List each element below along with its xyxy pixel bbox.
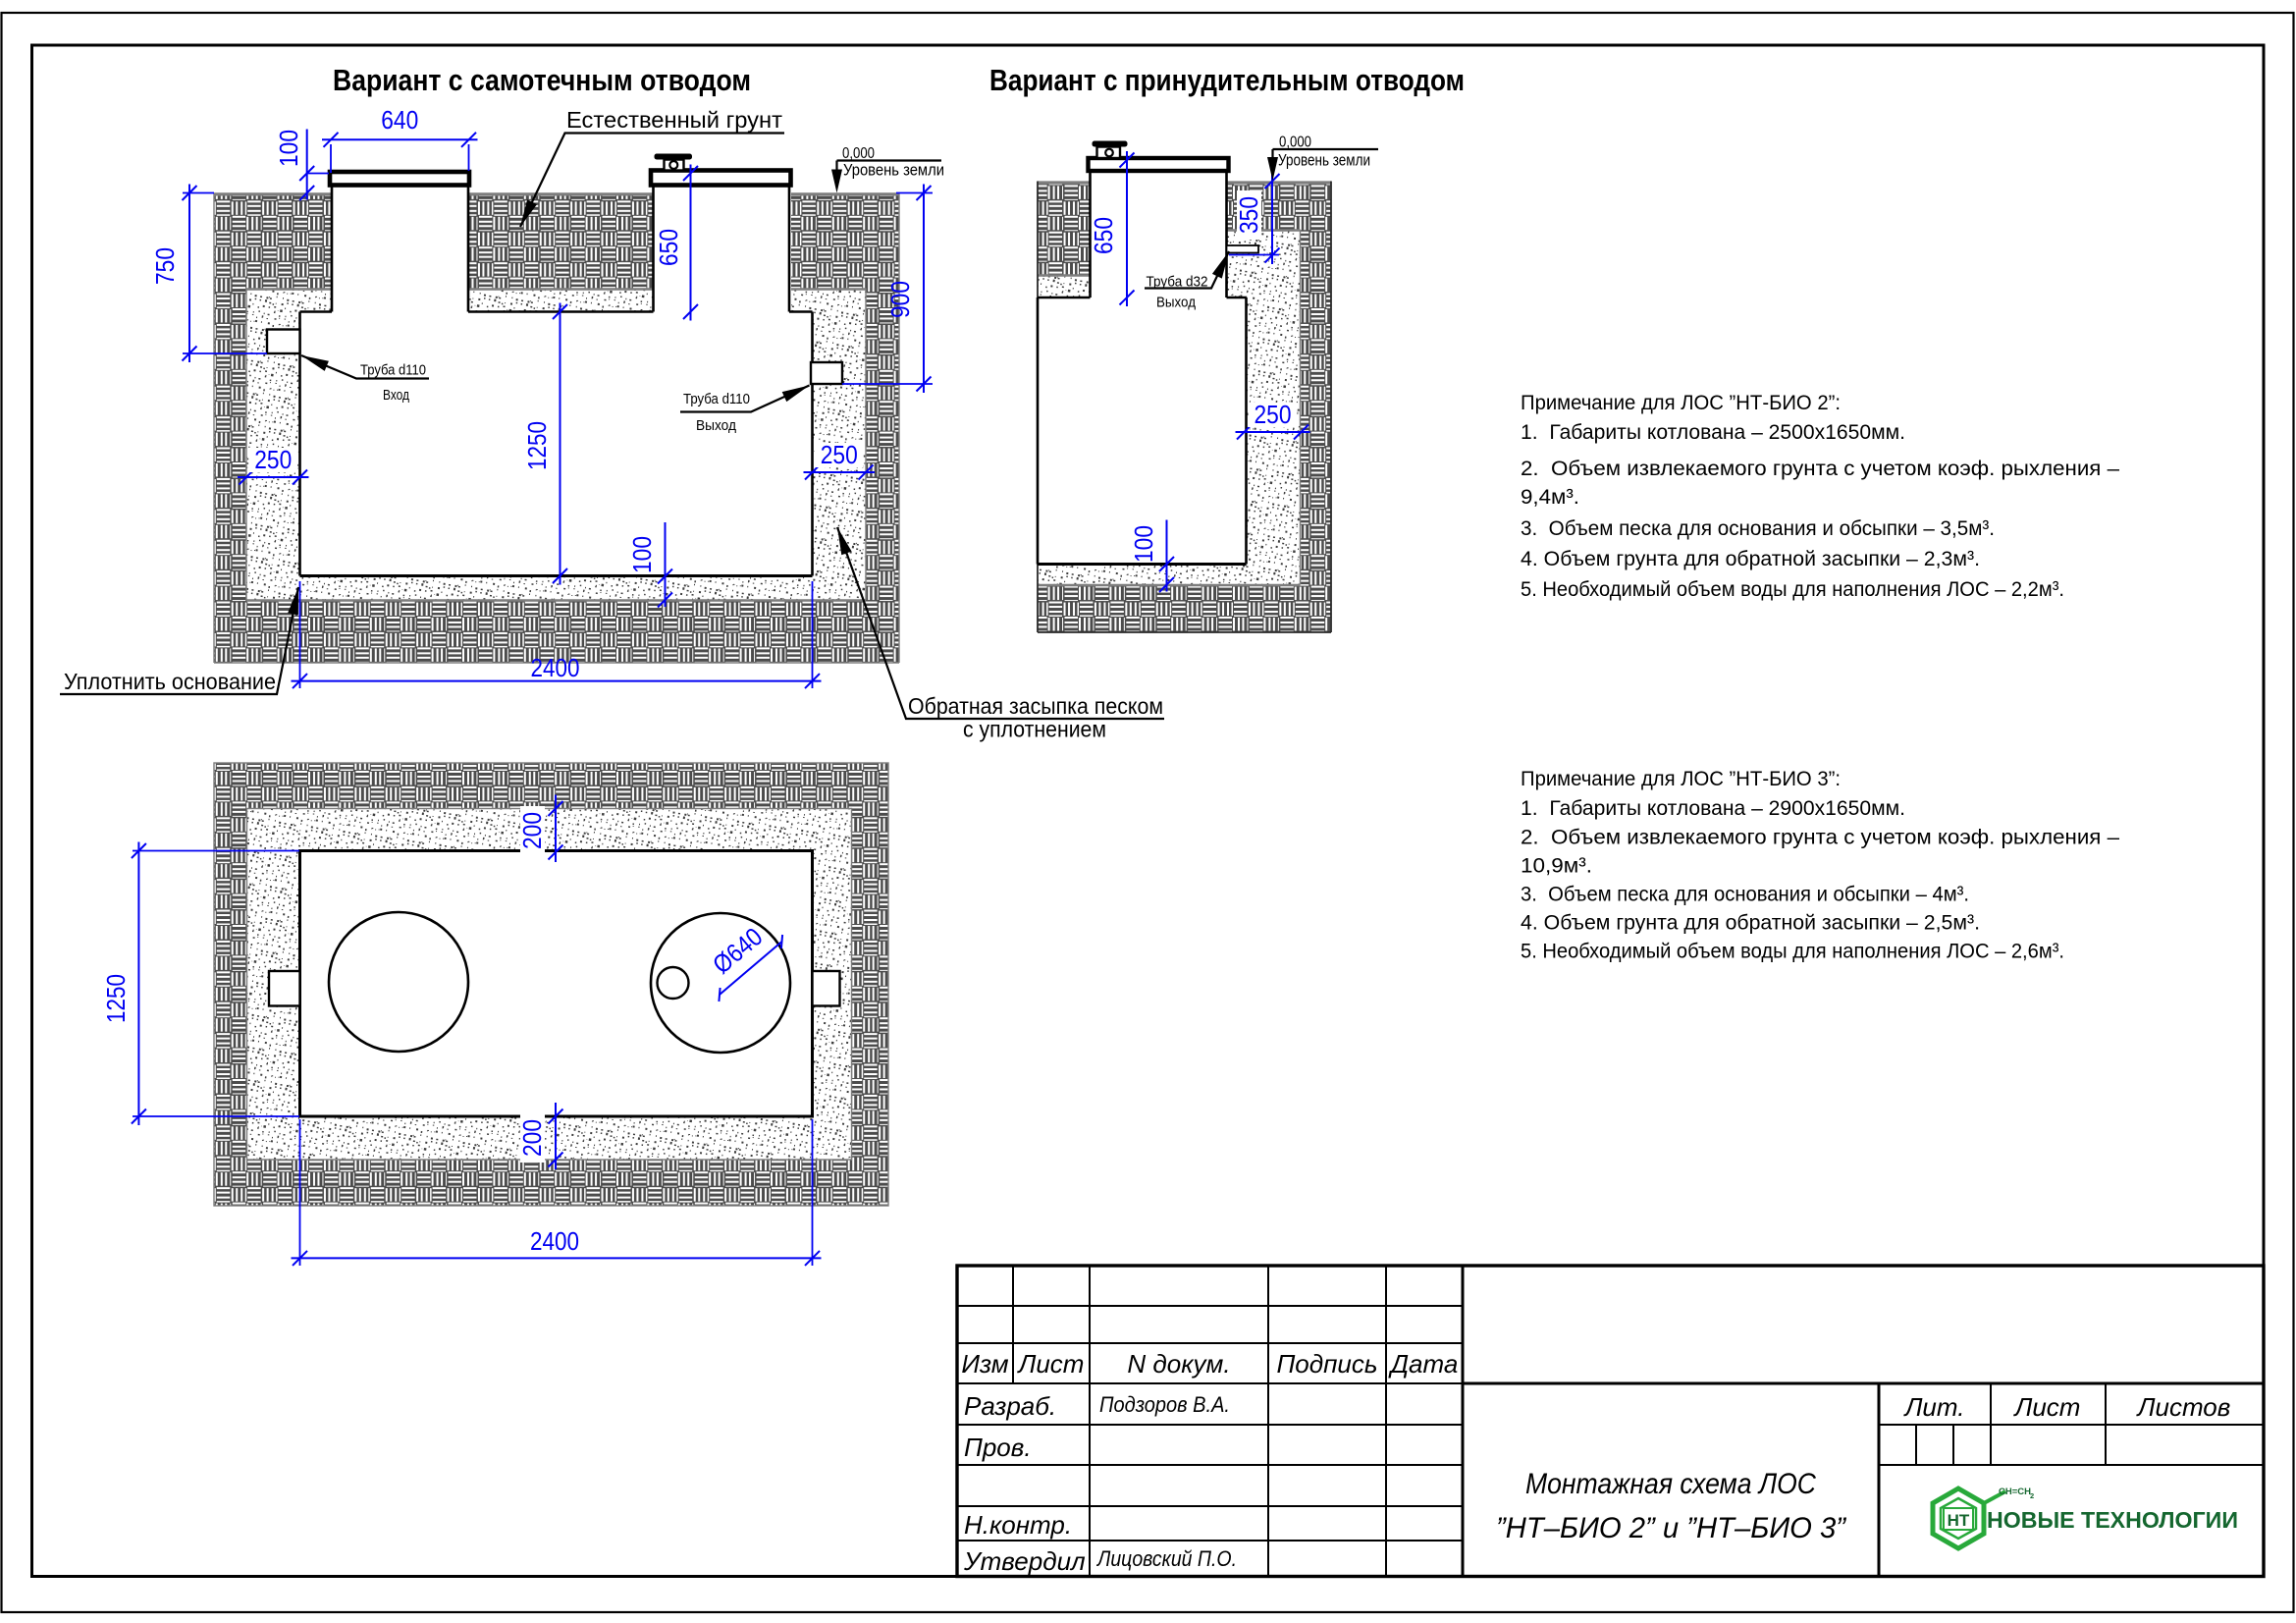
svg-text:Обратная засыпка песком: Обратная засыпка песком xyxy=(908,693,1163,719)
svg-text:100: 100 xyxy=(627,536,657,573)
svg-text:10,9м³.: 10,9м³. xyxy=(1521,854,1592,878)
svg-text:НОВЫЕ ТЕХНОЛОГИИ: НОВЫЕ ТЕХНОЛОГИИ xyxy=(1987,1507,2238,1533)
svg-text:СН=СН: СН=СН xyxy=(1999,1487,2031,1497)
svg-text:Разраб.: Разраб. xyxy=(964,1391,1056,1421)
svg-text:НТ: НТ xyxy=(1948,1511,1970,1530)
svg-text:640: 640 xyxy=(381,105,418,135)
svg-text:Лист: Лист xyxy=(2013,1392,2081,1422)
svg-text:Лит.: Лит. xyxy=(1903,1392,1965,1422)
svg-text:Выход: Выход xyxy=(696,417,736,434)
svg-text:Листов: Листов xyxy=(2136,1392,2231,1422)
svg-text:Труба d110: Труба d110 xyxy=(360,362,426,379)
svg-text:2: 2 xyxy=(2030,1491,2034,1500)
svg-text:900: 900 xyxy=(885,281,915,318)
svg-text:2400: 2400 xyxy=(530,1226,579,1256)
svg-text:Уровень земли: Уровень земли xyxy=(843,162,944,180)
svg-text:Подзоров В.А.: Подзоров В.А. xyxy=(1099,1392,1230,1417)
svg-text:650: 650 xyxy=(1089,217,1118,254)
svg-text:Лицовский П.О.: Лицовский П.О. xyxy=(1095,1546,1237,1571)
svg-text:3. Объем песка для основания: 3. Объем песка для основания и обсыпки –… xyxy=(1521,516,1995,540)
svg-text:5. Необходимый объем воды для: 5. Необходимый объем воды для наполнения… xyxy=(1521,940,2064,963)
svg-text:N докум.: N докум. xyxy=(1127,1349,1230,1379)
svg-text:200: 200 xyxy=(517,812,547,849)
svg-text:Труба d110: Труба d110 xyxy=(683,391,750,407)
svg-text:1250: 1250 xyxy=(101,974,131,1023)
svg-text:1. Габариты котлована – 2900х: 1. Габариты котлована – 2900х1650мм. xyxy=(1521,796,1905,820)
svg-text:750: 750 xyxy=(150,247,180,285)
svg-text:250: 250 xyxy=(821,440,858,469)
svg-text:Уплотнить основание: Уплотнить основание xyxy=(64,669,276,694)
svg-text:Вариант с самотечным отводом: Вариант с самотечным отводом xyxy=(333,63,751,97)
svg-text:Труба d32: Труба d32 xyxy=(1147,274,1208,291)
svg-text:Монтажная схема ЛОС: Монтажная схема ЛОС xyxy=(1525,1468,1816,1500)
svg-text:2. Объем извлекаемого грунта: 2. Объем извлекаемого грунта с учетом ко… xyxy=(1521,826,2119,849)
svg-text:100: 100 xyxy=(274,130,303,167)
svg-text:100: 100 xyxy=(1129,525,1158,563)
svg-text:Естественный грунт: Естественный грунт xyxy=(566,107,782,133)
svg-text:4. Объем грунта для обратной з: 4. Объем грунта для обратной засыпки – 2… xyxy=(1521,911,1980,935)
svg-text:Примечание для ЛОС ”НТ-БИО 2”:: Примечание для ЛОС ”НТ-БИО 2”: xyxy=(1521,391,1841,414)
svg-text:650: 650 xyxy=(654,229,683,266)
svg-text:Утвердил: Утвердил xyxy=(963,1546,1086,1576)
svg-text:Примечание для ЛОС ”НТ-БИО 3”:: Примечание для ЛОС ”НТ-БИО 3”: xyxy=(1521,767,1841,790)
svg-text:с уплотнением: с уплотнением xyxy=(963,717,1106,742)
svg-text:250: 250 xyxy=(1255,400,1292,429)
svg-text:1. Габариты котлована – 2500х: 1. Габариты котлована – 2500х1650мм. xyxy=(1521,420,1905,444)
svg-text:9,4м³.: 9,4м³. xyxy=(1521,485,1579,509)
svg-text:2400: 2400 xyxy=(531,653,580,682)
svg-text:Вариант с принудительным отвод: Вариант с принудительным отводом xyxy=(989,63,1465,97)
svg-text:Пров.: Пров. xyxy=(964,1433,1032,1462)
svg-text:0,000: 0,000 xyxy=(842,145,875,162)
svg-text:Уровень земли: Уровень земли xyxy=(1278,152,1370,170)
svg-text:1250: 1250 xyxy=(522,421,552,470)
svg-text:Дата: Дата xyxy=(1388,1349,1459,1379)
svg-text:Вход: Вход xyxy=(383,387,409,404)
svg-text:Лист: Лист xyxy=(1017,1349,1085,1379)
svg-text:0,000: 0,000 xyxy=(1279,135,1311,151)
svg-text:2. Объем извлекаемого грунта: 2. Объем извлекаемого грунта с учетом ко… xyxy=(1521,457,2119,480)
svg-text:3. Объем песка для основания: 3. Объем песка для основания и обсыпки –… xyxy=(1521,883,1969,906)
svg-text:5. Необходимый объем воды для: 5. Необходимый объем воды для наполнения… xyxy=(1521,577,2064,601)
svg-text:350: 350 xyxy=(1234,196,1263,234)
svg-text:”НТ–БИО 2” и ”НТ–БИО 3”: ”НТ–БИО 2” и ”НТ–БИО 3” xyxy=(1496,1512,1847,1544)
svg-text:200: 200 xyxy=(517,1119,547,1157)
svg-text:250: 250 xyxy=(254,445,292,474)
svg-text:Подпись: Подпись xyxy=(1276,1349,1377,1379)
svg-text:Н.контр.: Н.контр. xyxy=(964,1510,1072,1540)
svg-text:Изм: Изм xyxy=(961,1349,1008,1379)
svg-text:Выход: Выход xyxy=(1156,295,1196,311)
svg-text:4. Объем грунта для обратной з: 4. Объем грунта для обратной засыпки – 2… xyxy=(1521,547,1980,570)
